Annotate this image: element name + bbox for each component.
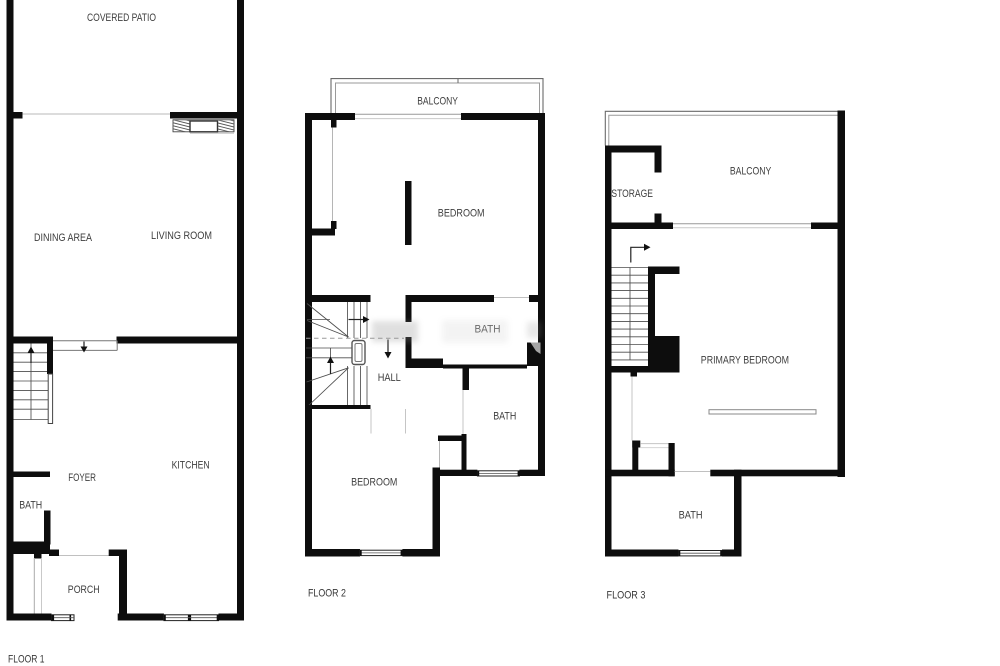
svg-text:BATH: BATH bbox=[493, 411, 516, 423]
svg-text:FLOOR 2: FLOOR 2 bbox=[308, 588, 346, 600]
svg-text:LIVING ROOM: LIVING ROOM bbox=[151, 230, 212, 242]
svg-text:FLOOR 3: FLOOR 3 bbox=[607, 589, 646, 601]
svg-text:PORCH: PORCH bbox=[68, 584, 100, 596]
svg-text:FOYER: FOYER bbox=[68, 472, 96, 484]
svg-text:BEDROOM: BEDROOM bbox=[351, 477, 397, 489]
svg-text:BEDROOM: BEDROOM bbox=[438, 208, 485, 220]
svg-text:FLOOR 1: FLOOR 1 bbox=[8, 654, 45, 666]
svg-text:HALL: HALL bbox=[378, 372, 401, 384]
svg-text:COVERED PATIO: COVERED PATIO bbox=[87, 12, 156, 24]
svg-text:BATH: BATH bbox=[679, 510, 703, 522]
svg-text:STORAGE: STORAGE bbox=[611, 188, 653, 200]
svg-text:PRIMARY BEDROOM: PRIMARY BEDROOM bbox=[701, 354, 789, 366]
svg-text:DINING AREA: DINING AREA bbox=[34, 232, 93, 244]
svg-text:BALCONY: BALCONY bbox=[417, 96, 458, 108]
svg-text:BATH: BATH bbox=[19, 500, 42, 512]
svg-text:KITCHEN: KITCHEN bbox=[172, 460, 210, 472]
svg-text:BALCONY: BALCONY bbox=[730, 165, 772, 177]
